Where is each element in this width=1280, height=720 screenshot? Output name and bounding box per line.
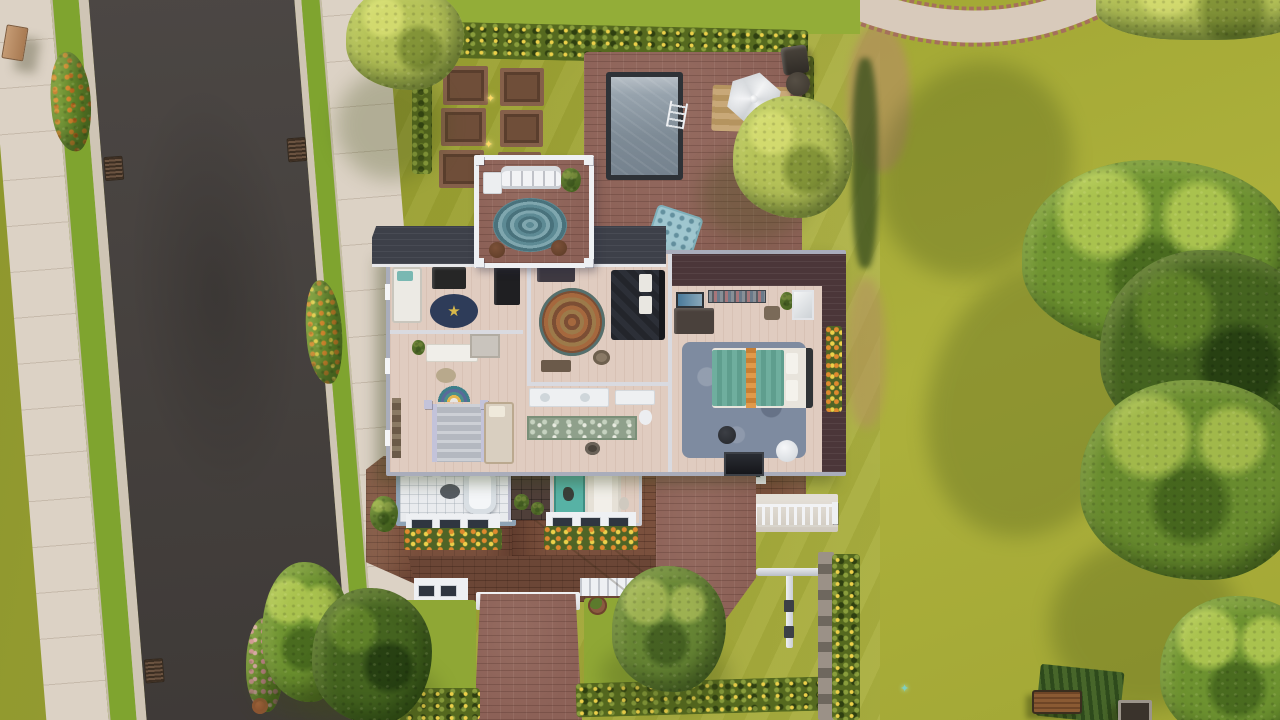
potted-plant[interactable]: [412, 340, 425, 355]
pillow: [639, 274, 652, 292]
storm-drain: [286, 137, 307, 162]
toy-dog: [563, 487, 574, 501]
sink-basin: [540, 393, 550, 402]
room-teen-bedroom: ★: [390, 258, 523, 334]
collectible-sparkle[interactable]: ✦: [900, 682, 909, 695]
pillow: [786, 353, 798, 374]
pillow: [639, 296, 652, 314]
room-bedroom2: [527, 254, 668, 386]
park-bench[interactable]: [1032, 690, 1082, 714]
blanket-teal: [756, 350, 784, 406]
clothesline-box: [784, 600, 794, 612]
round-rug[interactable]: [436, 368, 456, 383]
frontyard-tree[interactable]: [612, 566, 726, 692]
patio-tree[interactable]: [733, 96, 853, 218]
frontyard-tree[interactable]: [312, 588, 432, 720]
balcony: [474, 155, 594, 268]
bed-runner-orange: [746, 348, 756, 408]
upper-roof-right: [582, 226, 666, 267]
pergola-post: [584, 258, 593, 267]
porch-post: [832, 502, 838, 524]
pergola-post: [475, 258, 484, 267]
second-floor: ★: [386, 250, 846, 476]
dry-grass-patch: [846, 278, 886, 428]
pillow: [489, 406, 505, 417]
flower-box: [544, 526, 638, 550]
swimming-pool[interactable]: [606, 72, 683, 180]
vanity-counter[interactable]: [529, 388, 609, 407]
porch-window: [440, 585, 457, 597]
master-roof-band-top: [672, 254, 846, 286]
laundry-basket[interactable]: [585, 442, 600, 455]
park-path: [820, 0, 1140, 70]
clothesline-box: [784, 626, 794, 638]
bench[interactable]: [541, 360, 571, 372]
game-viewport: ✦: [0, 0, 1280, 720]
balcony-side-table[interactable]: [483, 172, 502, 194]
wall-art[interactable]: [676, 292, 704, 308]
garden-bed[interactable]: [500, 68, 544, 106]
storm-drain: [144, 658, 165, 683]
office-chair[interactable]: [718, 426, 736, 444]
clothesline-pole[interactable]: [786, 574, 793, 648]
bath-mat[interactable]: [440, 484, 460, 499]
single-bed[interactable]: [484, 402, 514, 464]
pet-bed[interactable]: [593, 350, 610, 365]
master-bed[interactable]: [712, 348, 813, 408]
garden-bed[interactable]: [500, 110, 543, 147]
flower-box: [404, 528, 502, 550]
bistro-table[interactable]: [786, 72, 810, 96]
clothes-rack[interactable]: [708, 290, 766, 303]
small-shrub[interactable]: [370, 496, 398, 532]
blanket-teal: [712, 350, 746, 406]
round-planter[interactable]: [551, 240, 567, 256]
umbrella-finial: [750, 95, 758, 103]
pillow: [786, 380, 798, 401]
vanity-mirror[interactable]: [792, 290, 814, 320]
storm-drain: [103, 156, 124, 181]
front-walkway: [474, 594, 582, 720]
master-dresser[interactable]: [674, 308, 714, 334]
pergola-post: [475, 156, 484, 165]
room-master-bedroom: [668, 254, 846, 472]
teen-dresser[interactable]: [494, 267, 520, 305]
braided-rug[interactable]: [539, 288, 605, 356]
exterior-window: [385, 430, 390, 446]
wicker-sofa[interactable]: [501, 166, 561, 189]
accent-chair[interactable]: [764, 306, 780, 320]
bbq-grill[interactable]: [780, 44, 810, 75]
sink-basin: [580, 393, 590, 402]
exterior-window: [385, 358, 390, 374]
roof-flower-box: [826, 326, 842, 412]
front-porch-fascia: [414, 578, 468, 602]
double-bed-black[interactable]: [611, 270, 665, 340]
shrub-column: [852, 58, 878, 268]
teen-desk[interactable]: [432, 267, 466, 289]
exterior-window: [385, 284, 390, 300]
cabinet[interactable]: [615, 390, 655, 405]
gardening-sparkle: ✦: [484, 138, 493, 151]
porch-window: [418, 585, 435, 597]
toilet[interactable]: [639, 410, 652, 425]
toy-bunny[interactable]: [619, 497, 629, 510]
floral-wallpaper-band: [527, 416, 637, 440]
side-table-round[interactable]: [776, 440, 798, 462]
clothesline-crossbar: [756, 568, 824, 576]
side-hedge[interactable]: [832, 554, 860, 720]
pillow: [397, 271, 413, 281]
teen-bed[interactable]: [392, 267, 422, 323]
gardening-sparkle: ✦: [486, 92, 495, 105]
round-planter[interactable]: [489, 242, 505, 258]
side-porch[interactable]: [746, 494, 838, 532]
upper-roof-left: [372, 226, 476, 267]
garden-bed[interactable]: [441, 108, 486, 146]
pergola-post: [584, 156, 593, 165]
room-staircase: [390, 398, 523, 468]
potted-plant[interactable]: [531, 502, 544, 515]
potted-plant[interactable]: [514, 494, 529, 510]
newel-post: [424, 400, 432, 409]
porch-railing: [746, 504, 838, 527]
wall-hatch[interactable]: [470, 334, 500, 358]
wall-shelf[interactable]: [392, 398, 401, 458]
fireplace-tv[interactable]: [724, 452, 764, 476]
star-rug[interactable]: ★: [430, 294, 478, 328]
staircase-steps[interactable]: [432, 404, 486, 462]
room-vanity-hall: [527, 386, 664, 468]
potted-palm[interactable]: [561, 168, 581, 192]
stone-planter[interactable]: [1118, 700, 1152, 720]
planter-pot[interactable]: [588, 596, 607, 615]
park-tree: [1080, 380, 1280, 580]
